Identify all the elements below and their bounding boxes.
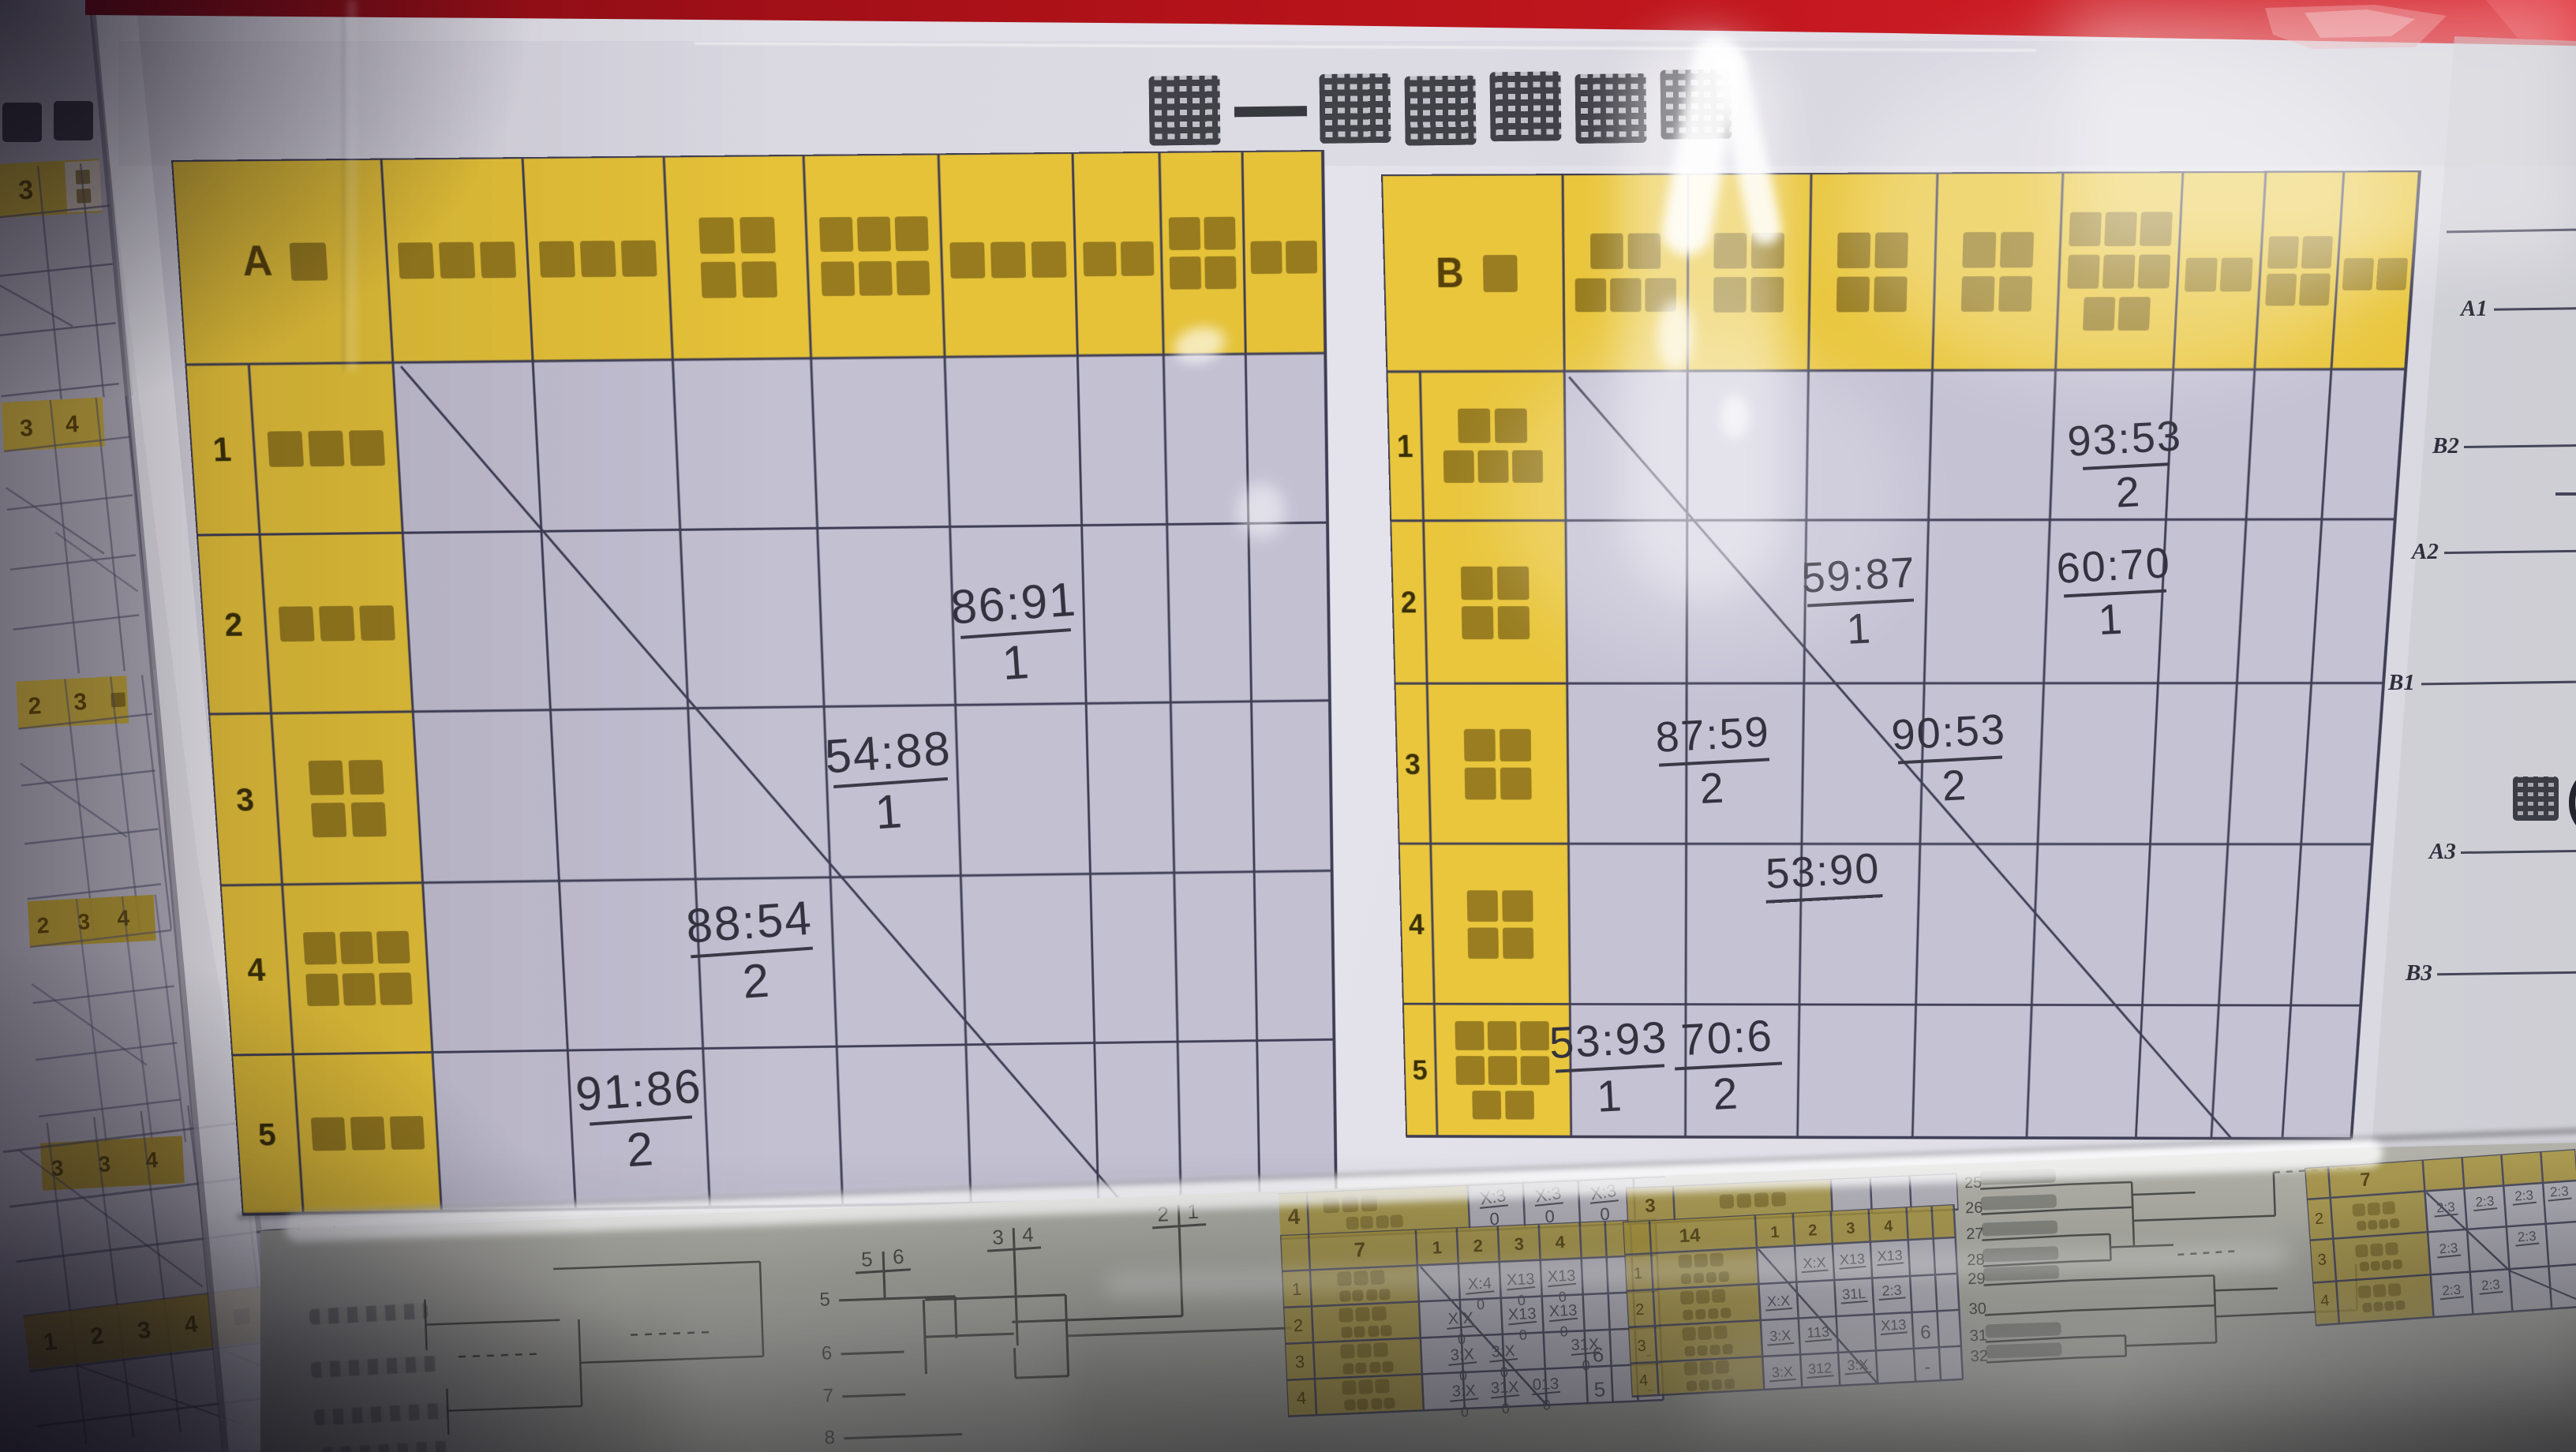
svg-text:4: 4	[1884, 1218, 1894, 1236]
svg-text:1: 1	[1770, 1224, 1780, 1242]
svg-text:3: 3	[1294, 1352, 1305, 1372]
svg-text:4: 4	[1296, 1388, 1306, 1409]
svg-text:3: 3	[2317, 1251, 2327, 1269]
svg-text:2:3: 2:3	[2514, 1188, 2534, 1204]
svg-text:X:X: X:X	[1447, 1309, 1473, 1327]
svg-text:6: 6	[893, 1244, 905, 1268]
svg-text:3:X: 3:X	[1450, 1345, 1474, 1364]
svg-text:2:3: 2:3	[2436, 1199, 2455, 1216]
svg-text:0: 0	[1500, 1364, 1508, 1380]
svg-text:2:3: 2:3	[2517, 1229, 2537, 1245]
svg-text:2:3: 2:3	[2481, 1277, 2500, 1293]
svg-text:27: 27	[1966, 1226, 1984, 1244]
svg-text:31X: 31X	[1490, 1379, 1519, 1398]
svg-text:4: 4	[1287, 1204, 1301, 1229]
svg-text:2:3: 2:3	[2439, 1241, 2458, 1257]
svg-text:14: 14	[1679, 1225, 1702, 1247]
svg-text:0: 0	[1458, 1331, 1466, 1347]
svg-text:4: 4	[1022, 1222, 1035, 1246]
svg-text:4: 4	[1555, 1232, 1566, 1252]
svg-text:0: 0	[1559, 1323, 1568, 1339]
svg-text:3:X: 3:X	[1491, 1342, 1515, 1360]
svg-text:2:3: 2:3	[1881, 1282, 1902, 1299]
svg-text:2: 2	[1635, 1301, 1645, 1319]
svg-text:2:3: 2:3	[2475, 1193, 2495, 1210]
svg-text:0: 0	[1582, 1357, 1590, 1373]
svg-text:X:X: X:X	[1767, 1293, 1791, 1309]
svg-text:1: 1	[1432, 1237, 1442, 1258]
svg-text:6: 6	[1592, 1342, 1604, 1367]
svg-text:3: 3	[1637, 1338, 1646, 1356]
svg-text:X13: X13	[1507, 1305, 1537, 1324]
svg-text:0: 0	[1501, 1401, 1510, 1416]
svg-text:3: 3	[1645, 1195, 1657, 1217]
svg-text:3: 3	[1514, 1234, 1524, 1255]
svg-text:30: 30	[1968, 1300, 1986, 1318]
svg-text:3: 3	[992, 1226, 1005, 1249]
svg-text:0: 0	[1518, 1327, 1527, 1342]
svg-text:2: 2	[1473, 1236, 1483, 1256]
svg-text:3: 3	[1846, 1220, 1855, 1238]
svg-text:4: 4	[2320, 1292, 2331, 1310]
svg-text:0: 0	[1459, 1368, 1468, 1383]
svg-text:3:X: 3:X	[1451, 1382, 1476, 1400]
svg-text:31L: 31L	[1842, 1285, 1866, 1303]
svg-text:X13: X13	[1548, 1302, 1578, 1321]
svg-text:7: 7	[2360, 1169, 2372, 1191]
svg-text:0: 0	[1477, 1297, 1485, 1312]
svg-text:2:3: 2:3	[2549, 1184, 2569, 1200]
svg-text:2: 2	[2314, 1211, 2324, 1229]
svg-text:2:3: 2:3	[2442, 1282, 2462, 1299]
svg-text:X13: X13	[1881, 1316, 1907, 1334]
svg-text:0: 0	[1461, 1404, 1470, 1420]
svg-text:2: 2	[1293, 1315, 1303, 1336]
svg-text:013: 013	[1532, 1375, 1559, 1394]
svg-text:4: 4	[1638, 1372, 1648, 1390]
svg-text:26: 26	[1965, 1199, 1983, 1218]
svg-text:0: 0	[1542, 1397, 1551, 1413]
svg-text:7: 7	[1354, 1237, 1366, 1262]
svg-text:2: 2	[1808, 1222, 1818, 1240]
svg-text:5: 5	[1593, 1377, 1606, 1401]
